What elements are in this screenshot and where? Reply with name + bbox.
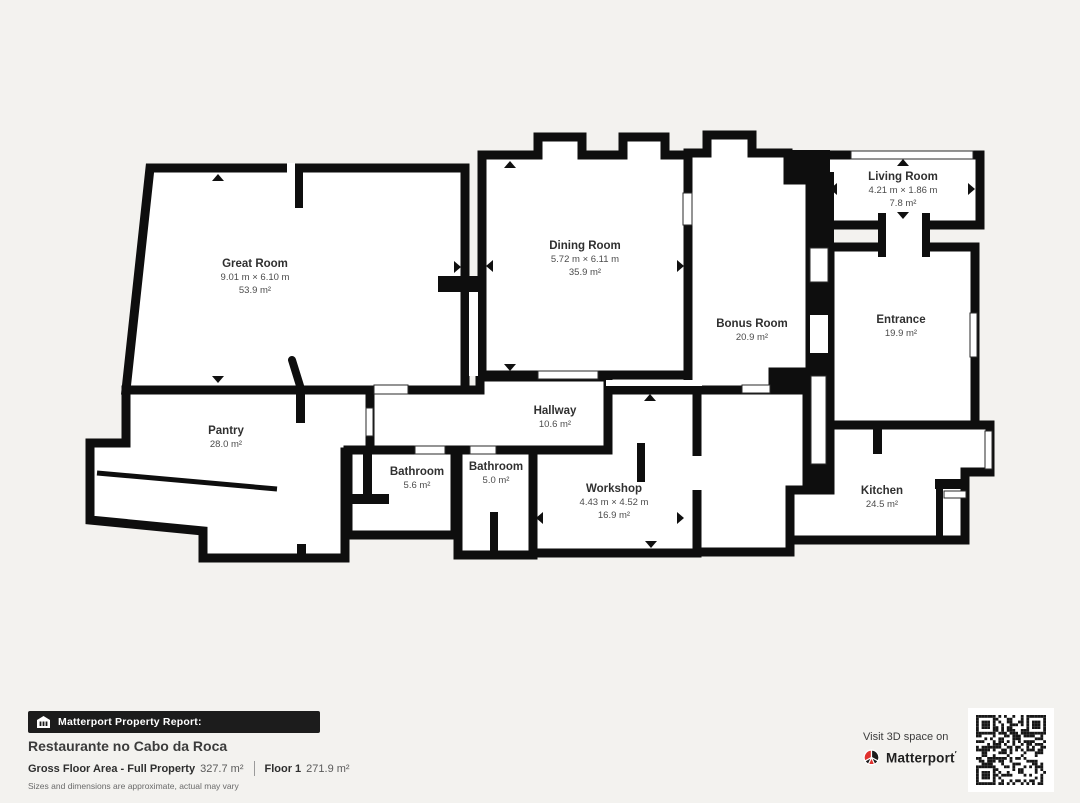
room-label-living-room: Living Room 4.21 m × 1.86 m 7.8 m² <box>868 170 938 210</box>
gross-floor-area-value: 327.7 m² <box>200 763 243 775</box>
stats-divider <box>254 761 255 776</box>
floor-area-stats: Gross Floor Area - Full Property 327.7 m… <box>28 761 350 776</box>
report-banner: Matterport Property Report: <box>28 711 320 733</box>
banner-label: Matterport Property Report: <box>58 716 202 728</box>
room-label-hallway: Hallway 10.6 m² <box>534 404 577 431</box>
room-label-kitchen: Kitchen 24.5 m² <box>861 484 903 511</box>
room-label-entrance: Entrance 19.9 m² <box>876 313 925 340</box>
visit-3d-text: Visit 3D space on <box>863 731 948 743</box>
matterport-brand: Matterport′ <box>863 749 957 766</box>
room-label-dining-room: Dining Room 5.72 m × 6.11 m 35.9 m² <box>549 239 621 279</box>
room-label-workshop: Workshop 4.43 m × 4.52 m 16.9 m² <box>580 482 649 522</box>
floor-label: Floor 1 <box>265 763 302 775</box>
property-report-page: Great Room 9.01 m × 6.10 m 53.9 m² Dinin… <box>0 0 1080 803</box>
room-label-bathroom-2: Bathroom 5.0 m² <box>469 460 523 487</box>
room-label-bathroom-1: Bathroom 5.6 m² <box>390 465 444 492</box>
gross-floor-area-label: Gross Floor Area - Full Property <box>28 763 195 775</box>
qr-code <box>968 708 1054 792</box>
matterport-logo-icon <box>863 749 880 766</box>
room-label-bonus-room: Bonus Room 20.9 m² <box>716 317 788 344</box>
property-name: Restaurante no Cabo da Roca <box>28 738 227 754</box>
disclaimer-text: Sizes and dimensions are approximate, ac… <box>28 781 239 791</box>
floor-value: 271.9 m² <box>306 763 349 775</box>
room-label-great-room: Great Room 9.01 m × 6.10 m 53.9 m² <box>221 257 290 297</box>
floor-plan <box>0 0 1080 803</box>
brand-name: Matterport′ <box>886 750 957 766</box>
room-label-pantry: Pantry 28.0 m² <box>208 424 244 451</box>
building-icon <box>37 716 50 728</box>
